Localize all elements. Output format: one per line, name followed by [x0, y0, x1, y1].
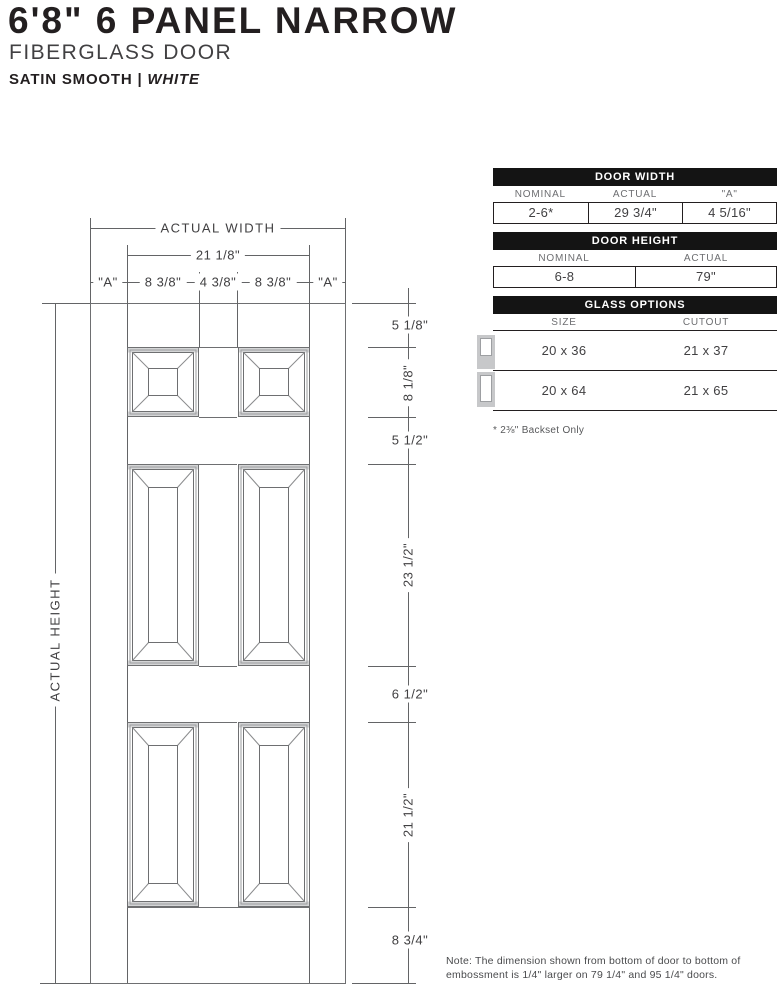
glass-options-table: GLASS OPTIONS SIZE CUTOUT 20 x 36 21 x 3… — [493, 296, 777, 436]
door-width-nominal-value: 2-6* — [494, 203, 588, 223]
panel-width-right-dim: 8 3/8" — [250, 274, 297, 291]
door-drawing — [0, 0, 780, 997]
door-height-header-nominal: NOMINAL — [493, 250, 635, 266]
glass-header-size: SIZE — [493, 314, 635, 330]
panel-width-left-dim: 8 3/8" — [140, 274, 187, 291]
door-width-values: 2-6* 29 3/4" 4 5/16" — [493, 202, 777, 224]
top-rail-dim: 5 1/8" — [387, 317, 434, 334]
mid-rail1-dim: 5 1/2" — [387, 432, 434, 449]
stile-a-left-dim: "A" — [93, 274, 122, 291]
spec-sheet-page: 6'8" 6 PANEL NARROW FIBERGLASS DOOR SATI… — [0, 0, 780, 997]
door-width-header-a: "A" — [682, 186, 777, 202]
glass-header-cutout: CUTOUT — [635, 314, 777, 330]
bottom-rail-dim: 8 3/4" — [387, 932, 434, 949]
center-stile-dim: 4 3/8" — [195, 274, 242, 291]
door-width-header-nominal: NOMINAL — [493, 186, 588, 202]
actual-width-label: ACTUAL WIDTH — [155, 220, 280, 237]
glass-options-table-title: GLASS OPTIONS — [493, 296, 777, 314]
door-height-header-actual: ACTUAL — [635, 250, 777, 266]
mid-panel-dim: 23 1/2" — [400, 538, 417, 592]
half-lite-door-icon — [477, 335, 495, 369]
stile-a-right-dim: "A" — [313, 274, 342, 291]
bottom-panel-dim: 21 1/2" — [400, 788, 417, 842]
backset-footnote: * 2⅜" Backset Only — [493, 425, 777, 436]
door-width-header-actual: ACTUAL — [588, 186, 683, 202]
glass-row: 20 x 64 21 x 65 — [493, 371, 777, 411]
full-lite-door-icon — [477, 372, 495, 407]
embossment-note: Note: The dimension shown from bottom of… — [446, 954, 756, 982]
mid-rail2-dim: 6 1/2" — [387, 686, 434, 703]
glass-cutout-value: 21 x 37 — [635, 331, 777, 370]
door-height-actual-value: 79" — [635, 267, 776, 287]
door-height-table-title: DOOR HEIGHT — [493, 232, 777, 250]
door-height-values: 6-8 79" — [493, 266, 777, 288]
door-height-nominal-value: 6-8 — [494, 267, 635, 287]
glass-row: 20 x 36 21 x 37 — [493, 331, 777, 371]
door-height-table: DOOR HEIGHT NOMINAL ACTUAL 6-8 79" — [493, 232, 777, 288]
glass-size-value: 20 x 64 — [493, 371, 635, 410]
inner-width-dim: 21 1/8" — [191, 247, 245, 264]
door-width-actual-value: 29 3/4" — [588, 203, 682, 223]
glass-size-value: 20 x 36 — [493, 331, 635, 370]
door-width-table-title: DOOR WIDTH — [493, 168, 777, 186]
actual-height-label: ACTUAL HEIGHT — [47, 573, 64, 706]
glass-cutout-value: 21 x 65 — [635, 371, 777, 410]
door-width-table: DOOR WIDTH NOMINAL ACTUAL "A" 2-6* 29 3/… — [493, 168, 777, 224]
door-width-a-value: 4 5/16" — [682, 203, 776, 223]
spec-tables: DOOR WIDTH NOMINAL ACTUAL "A" 2-6* 29 3/… — [493, 168, 777, 436]
top-panel-dim: 8 1/8" — [400, 360, 417, 407]
